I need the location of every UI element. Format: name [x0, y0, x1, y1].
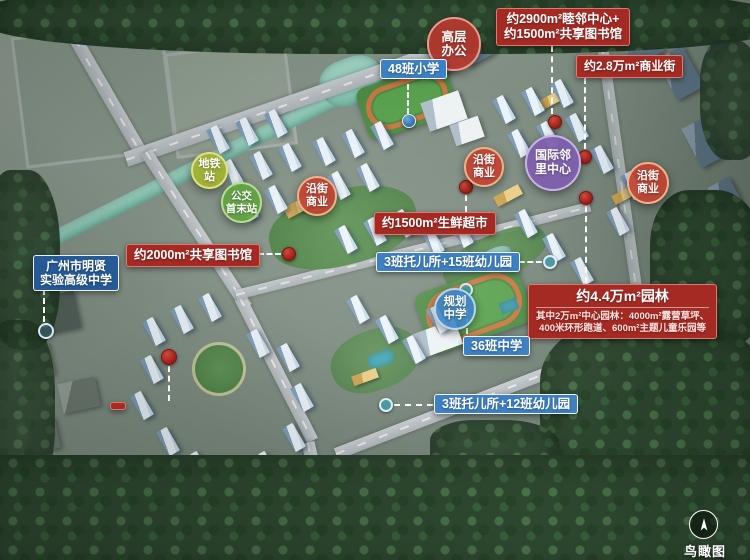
badge-street-retail-center: 沿街 商业	[464, 147, 504, 187]
badge-street-retail-east: 沿街 商业	[627, 162, 669, 204]
badge-planned-middle-school: 规划 中学	[434, 288, 476, 330]
label-nursery-12: 3班托儿所+12班幼儿园	[434, 394, 578, 414]
label-line: 首末站	[226, 203, 258, 215]
garden-details: 其中2万m²中心园林：4000m²露营草坪、 400米环形跑道、600m²主题儿…	[536, 307, 709, 335]
label-mingxian-school: 广州市明贤 实验高级中学	[33, 255, 119, 291]
label-line: 中学	[444, 309, 467, 322]
forest-patch	[0, 0, 750, 54]
label-line: 地铁	[199, 158, 221, 171]
label-fresh-market-south	[110, 402, 126, 410]
leader-line-neighbor-center	[551, 46, 553, 114]
badge-street-retail-west: 沿街 商业	[297, 176, 337, 216]
label-line: 实验高级中学	[40, 273, 112, 287]
site-highlight	[130, 70, 690, 490]
forest-patch	[700, 40, 750, 160]
marker-primary-school	[402, 114, 416, 128]
marker-fresh-market-south	[161, 349, 177, 365]
label-line: 站	[204, 171, 215, 184]
label-primary-school: 48班小学	[380, 59, 447, 79]
leader-line-nursery-12	[394, 404, 433, 406]
label-line: 约1500m²共享图书馆	[504, 27, 622, 42]
marker-garden	[579, 191, 593, 205]
leader-line-library	[258, 253, 281, 255]
marker-neighbor-center	[548, 115, 562, 129]
label-line: 约2900m²睦邻中心+	[504, 12, 622, 27]
label-neighbor-center: 约2900m²睦邻中心+ 约1500m²共享图书馆	[496, 8, 630, 46]
label-line: 其中2万m²中心园林：4000m²露营草坪、	[536, 311, 709, 323]
label-line: 国际邻	[535, 149, 571, 163]
label-line: 沿街	[473, 154, 495, 167]
leader-line-mingxian	[43, 289, 45, 322]
label-line: 公交	[231, 190, 252, 202]
leader-line-fresh-market-north	[465, 195, 467, 212]
label-line: 商业	[306, 196, 328, 209]
label-garden: 约4.4万m²园林 其中2万m²中心园林：4000m²露营草坪、 400米环形跑…	[528, 284, 717, 339]
label-line: 广州市明贤	[40, 259, 112, 273]
label-line: 里中心	[535, 163, 571, 177]
leader-line-garden	[585, 206, 587, 283]
label-line: 沿街	[637, 170, 659, 183]
label-middle-school-36: 36班中学	[463, 336, 530, 356]
marker-nursery-12	[379, 398, 393, 412]
leader-line-fresh-market-south	[168, 366, 170, 401]
label-fresh-market-north: 约1500m²生鲜超市	[374, 212, 496, 235]
label-line: 办公	[441, 44, 466, 58]
view-caption: 鸟瞰图	[684, 541, 726, 560]
label-line: 400米环形跑道、600m²主题儿童乐园等	[536, 323, 709, 335]
label-line: 商业	[473, 167, 495, 180]
badge-bus-terminal: 公交 首末站	[221, 182, 262, 223]
label-line: 高层	[441, 30, 466, 44]
leader-line-commercial-street	[584, 78, 586, 149]
garden-title: 约4.4万m²园林	[536, 288, 709, 304]
label-commercial-street: 约2.8万m²商业街	[576, 55, 683, 78]
aerial-site-plan: 约2900m²睦邻中心+ 约1500m²共享图书馆 约2.8万m²商业街 48班…	[0, 0, 750, 560]
badge-intl-neighborhood-center: 国际邻 里中心	[525, 135, 581, 191]
label-line: 沿街	[306, 183, 328, 196]
marker-nursery-15	[543, 255, 557, 269]
label-library: 约2000m²共享图书馆	[126, 244, 260, 267]
marker-library	[282, 247, 296, 261]
compass	[689, 510, 718, 539]
label-nursery-15: 3班托儿所+15班幼儿园	[376, 252, 520, 272]
label-line: 规划	[444, 296, 467, 309]
context-building	[57, 376, 100, 413]
marker-mingxian	[38, 323, 54, 339]
compass-north-arrow-icon	[695, 516, 713, 534]
leader-line-primary-school	[407, 84, 409, 114]
label-line: 商业	[637, 183, 659, 196]
badge-metro-station: 地铁 站	[191, 152, 228, 189]
